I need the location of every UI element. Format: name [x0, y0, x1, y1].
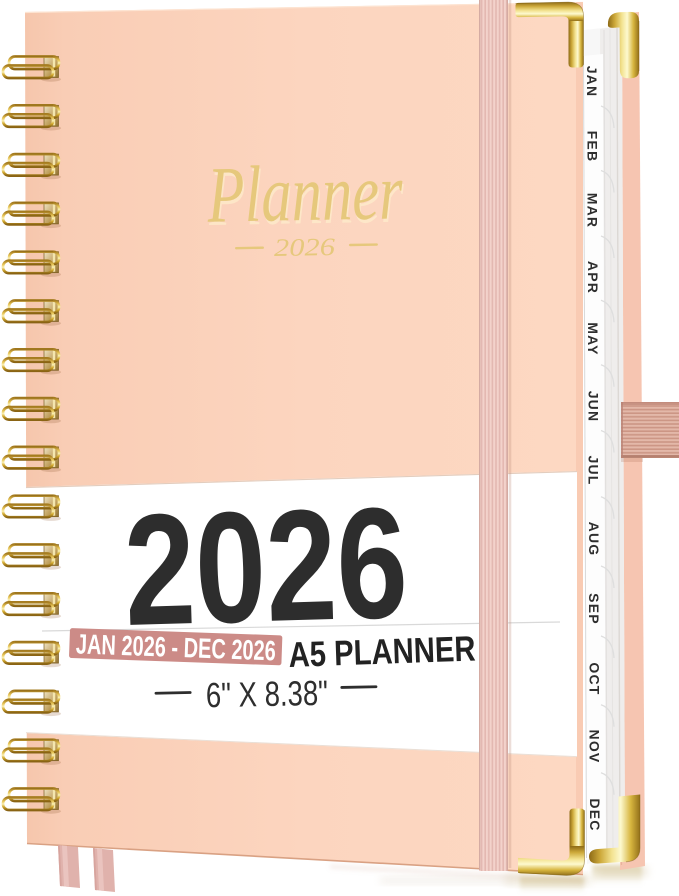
svg-text:JUN: JUN — [585, 391, 601, 423]
svg-text:OCT: OCT — [586, 662, 602, 695]
svg-text:FEB: FEB — [584, 131, 600, 163]
svg-text:APR: APR — [585, 261, 601, 294]
svg-text:2026: 2026 — [274, 234, 336, 262]
svg-text:SEP: SEP — [586, 593, 602, 625]
svg-text:MAY: MAY — [585, 322, 601, 355]
svg-text:JAN: JAN — [584, 66, 600, 98]
svg-text:NOV: NOV — [587, 730, 603, 764]
svg-text:DEC: DEC — [587, 798, 603, 831]
svg-text:Planner: Planner — [206, 148, 404, 239]
svg-text:MAR: MAR — [585, 193, 601, 228]
svg-text:A5 PLANNER: A5 PLANNER — [288, 628, 476, 675]
svg-text:JUL: JUL — [586, 455, 602, 485]
svg-text:6" X 8.38": 6" X 8.38" — [206, 674, 329, 716]
svg-text:AUG: AUG — [586, 522, 602, 557]
